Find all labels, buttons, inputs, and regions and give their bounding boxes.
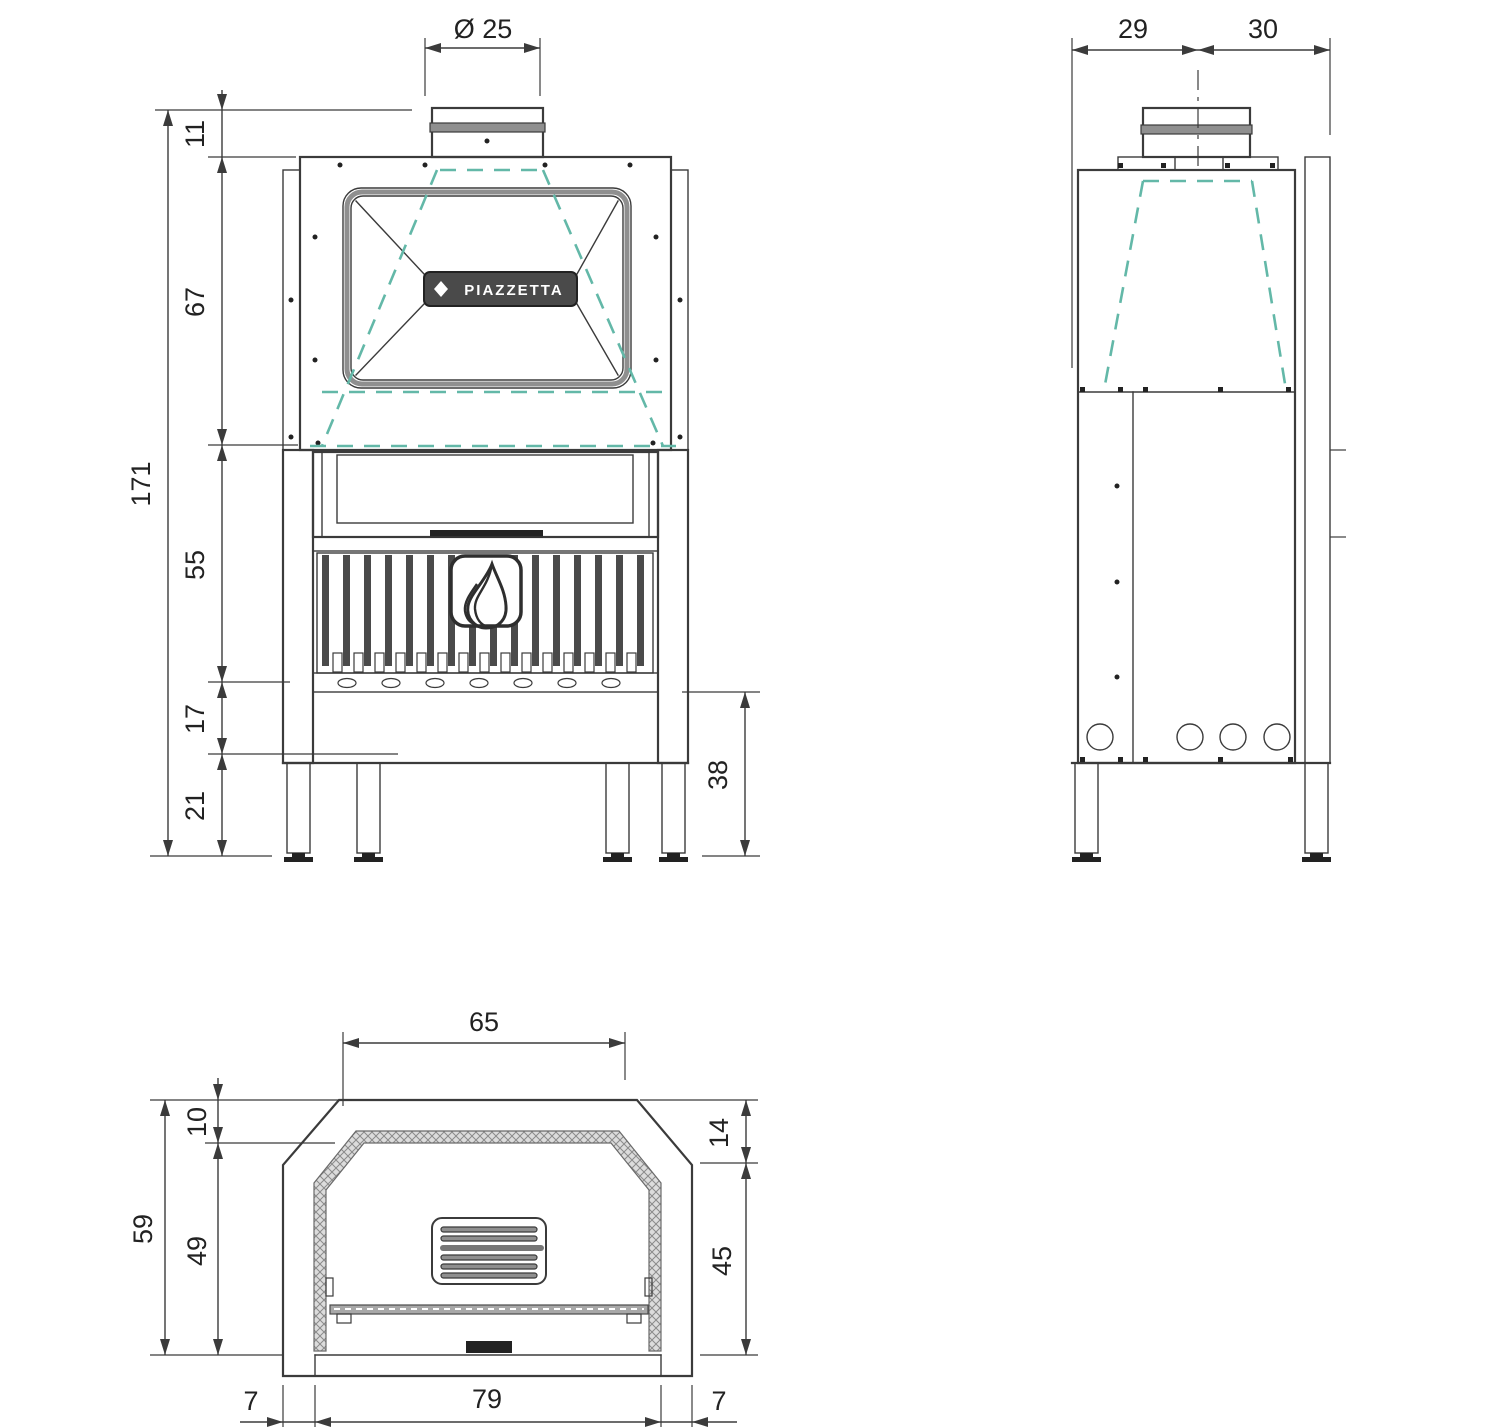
grate — [313, 553, 658, 692]
dim-firebox-height-label: 55 — [180, 550, 210, 580]
dim-total-depth-label: 59 — [128, 1214, 158, 1244]
left-side-strip — [283, 170, 300, 450]
dim-opening-width-label: 65 — [469, 1007, 499, 1037]
dim-flue-diameter-label: Ø 25 — [454, 14, 513, 44]
dim-side-depth-label: 45 — [707, 1246, 737, 1276]
dim-front-offset-label: 14 — [704, 1118, 734, 1148]
flame-icon — [451, 556, 521, 628]
legs-front — [284, 763, 688, 862]
front-band — [315, 1355, 661, 1376]
front-dimensions: Ø 25 11 67 55 17 21 171 38 — [126, 14, 760, 856]
left-column — [283, 450, 313, 763]
adjustable-feet — [284, 853, 688, 862]
right-side-strip — [671, 170, 688, 450]
legs-side — [1072, 763, 1331, 862]
firebox-door — [313, 452, 658, 551]
right-column — [658, 450, 688, 763]
dim-leg-height-label: 21 — [180, 791, 210, 821]
dim-rear-offset-label: 10 — [182, 1107, 212, 1137]
side-view: 29 30 — [1072, 14, 1346, 862]
dim-left-wall-label: 7 — [243, 1386, 258, 1416]
ash-tray-handle — [466, 1341, 512, 1353]
air-duct-hole — [1177, 724, 1203, 750]
air-duct-hole — [1220, 724, 1246, 750]
dim-inner-depth-label: 49 — [182, 1236, 212, 1266]
glass-front-section — [330, 1305, 648, 1323]
air-duct-hole — [1264, 724, 1290, 750]
flue-collar-front — [430, 108, 545, 157]
dim-front-width-label: 79 — [472, 1384, 502, 1414]
dim-plinth-height-label: 38 — [703, 760, 733, 790]
front-view: PIAZZETTA — [126, 14, 760, 862]
technical-drawing: PIAZZETTA — [0, 0, 1500, 1427]
dim-depth-front-label: 29 — [1118, 14, 1148, 44]
dim-hood-height-label: 67 — [180, 287, 210, 317]
dim-total-height-label: 171 — [126, 461, 156, 506]
air-grille — [432, 1218, 546, 1284]
side-dimensions: 29 30 — [1072, 14, 1330, 368]
dim-right-wall-label: 7 — [711, 1386, 726, 1416]
rear-heat-shield — [1305, 157, 1330, 763]
dim-depth-rear-label: 30 — [1248, 14, 1278, 44]
dim-top-offset-label: 11 — [180, 120, 210, 148]
air-duct-hole — [1087, 724, 1113, 750]
plinth — [283, 692, 688, 763]
firebox-glass — [337, 455, 633, 523]
flue-collar-side — [1141, 108, 1252, 157]
dim-base-height-label: 17 — [180, 704, 210, 734]
convection-dashed-lines-side — [1104, 181, 1286, 390]
top-view: 65 59 10 49 14 45 7 79 7 — [128, 1007, 758, 1427]
side-body — [1072, 157, 1346, 763]
brand-logo-text: PIAZZETTA — [464, 282, 563, 299]
brand-plaque: PIAZZETTA — [424, 272, 577, 306]
hood-glass-door: PIAZZETTA — [343, 188, 631, 388]
